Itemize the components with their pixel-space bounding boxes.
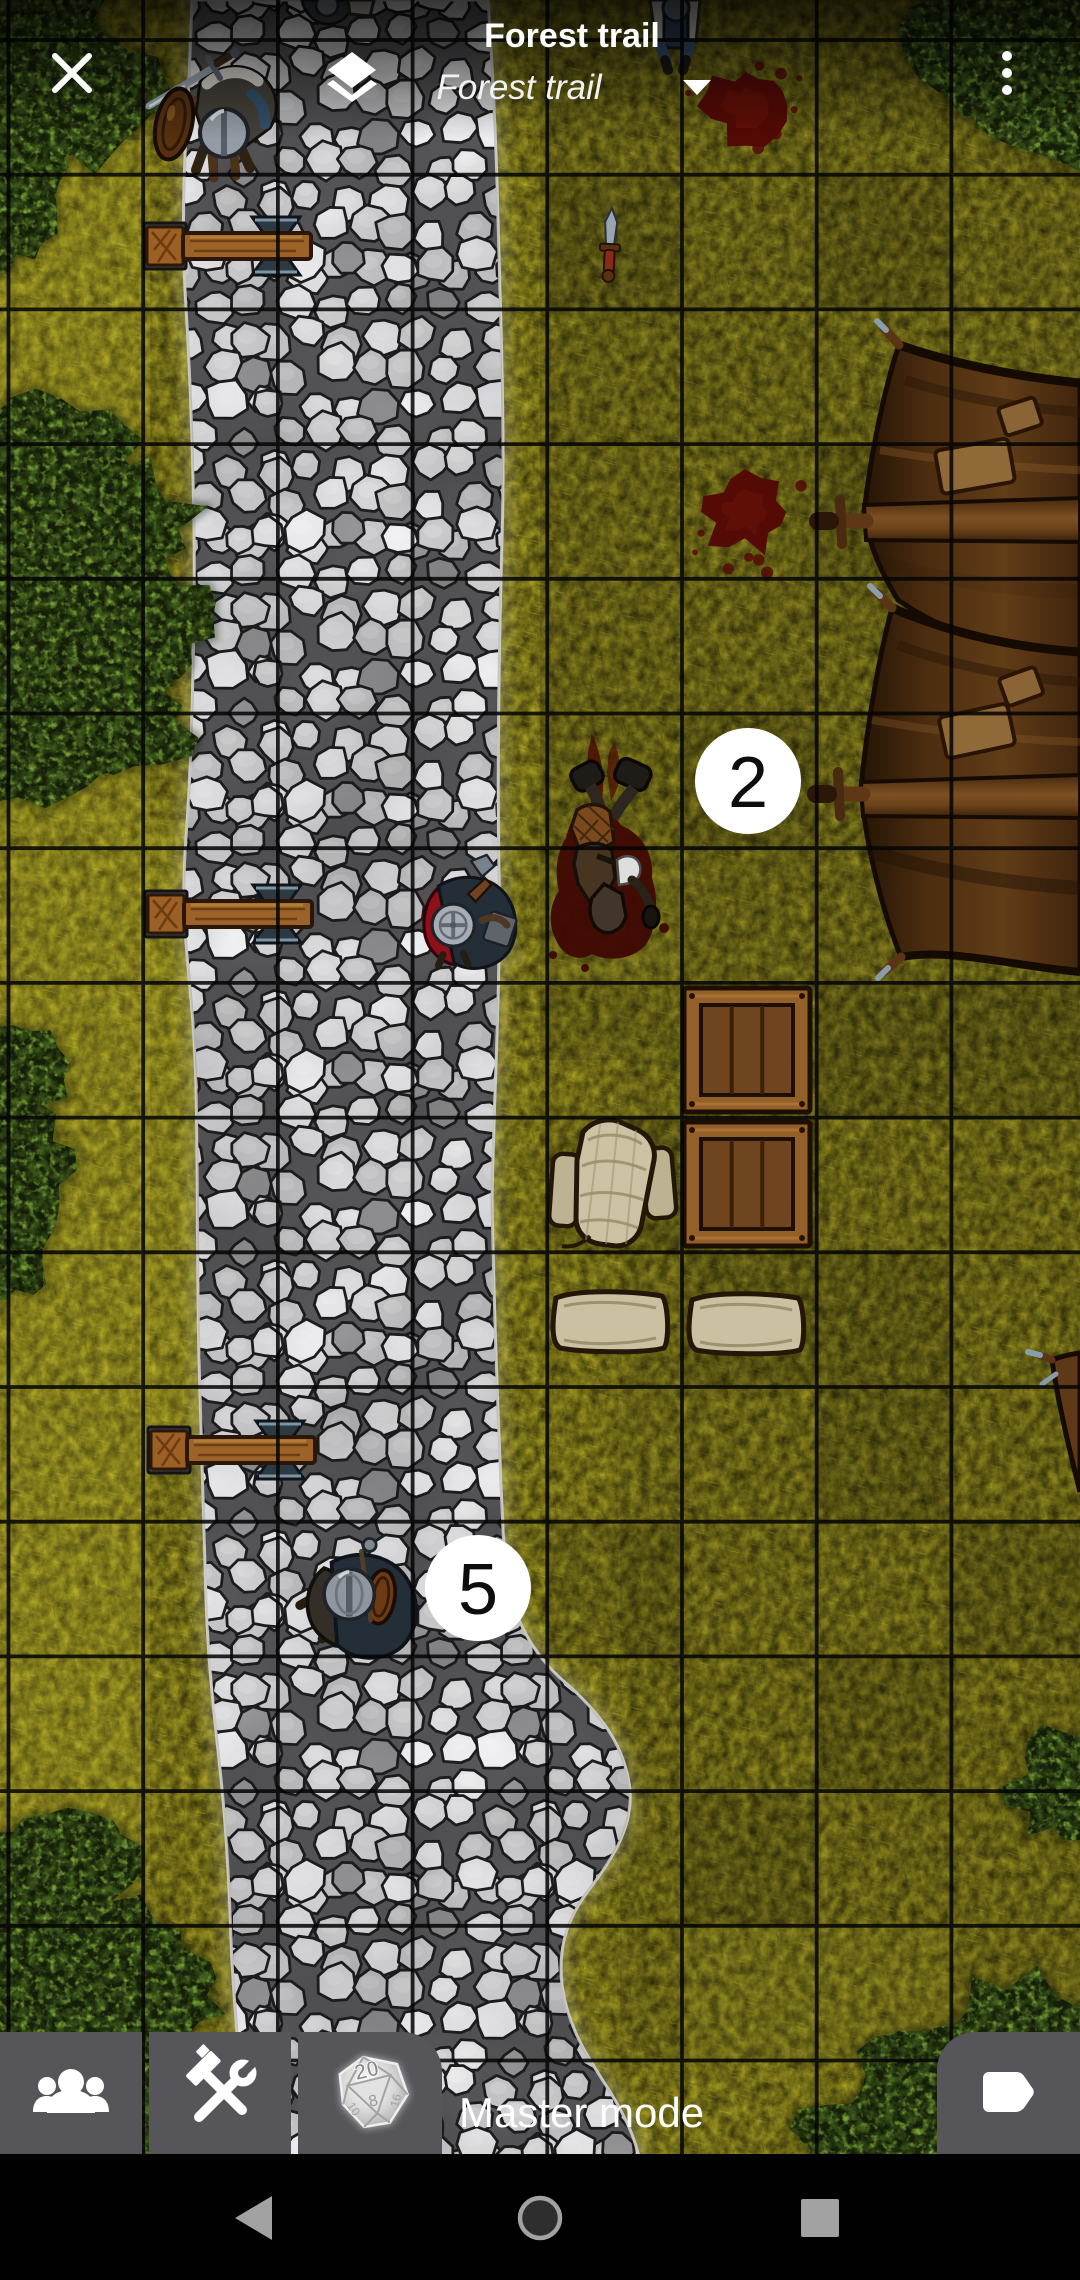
- svg-text:2: 2: [728, 743, 768, 823]
- svg-text:Forest trail: Forest trail: [484, 17, 660, 55]
- svg-text:Master mode: Master mode: [459, 2089, 704, 2136]
- svg-text:5: 5: [458, 1550, 498, 1630]
- svg-text:Forest trail: Forest trail: [436, 68, 603, 107]
